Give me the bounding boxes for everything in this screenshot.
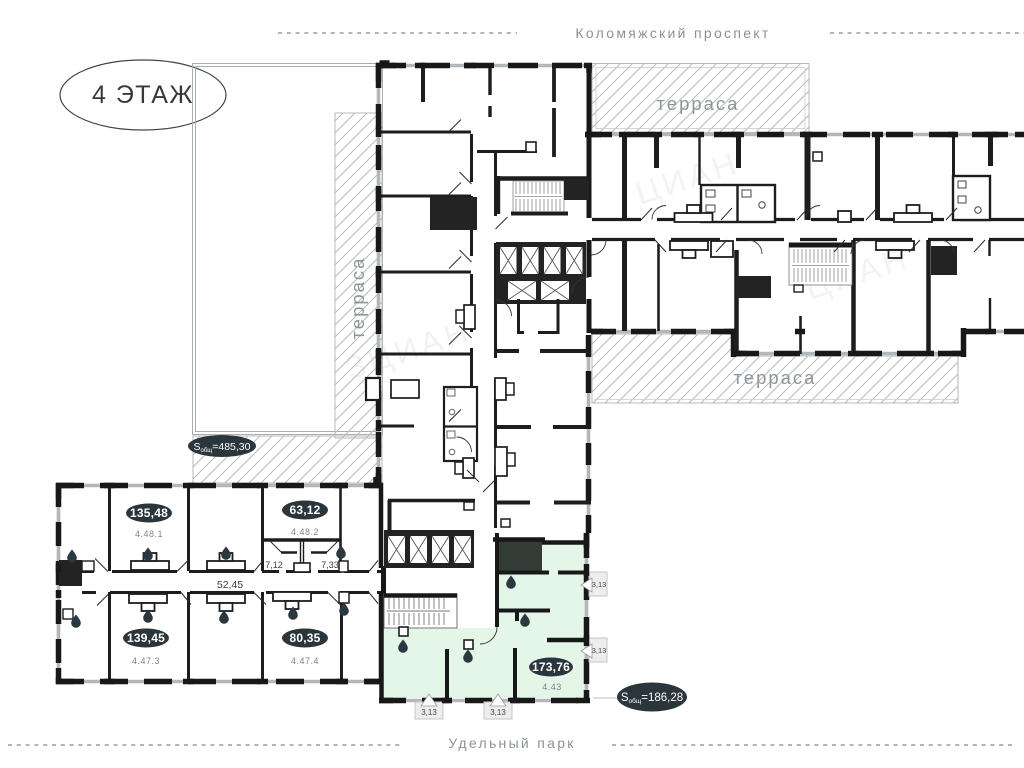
svg-text:52,45: 52,45 xyxy=(217,579,243,591)
svg-text:80,35: 80,35 xyxy=(289,631,320,645)
svg-text:7,12: 7,12 xyxy=(265,560,283,570)
svg-text:терраса: терраса xyxy=(347,257,368,340)
svg-text:4.47.4: 4.47.4 xyxy=(291,656,319,666)
svg-text:63,12: 63,12 xyxy=(289,503,320,517)
svg-text:3,13: 3,13 xyxy=(592,580,607,589)
svg-text:4 ЭТАЖ: 4 ЭТАЖ xyxy=(92,81,194,109)
svg-text:4.43: 4.43 xyxy=(542,682,562,692)
svg-text:139,45: 139,45 xyxy=(127,631,165,645)
svg-text:Удельный парк: Удельный парк xyxy=(448,735,575,751)
svg-text:4.48.2: 4.48.2 xyxy=(291,527,319,537)
svg-text:3,13: 3,13 xyxy=(490,708,506,717)
svg-text:терраса: терраса xyxy=(734,367,817,388)
svg-text:терраса: терраса xyxy=(657,93,740,114)
svg-text:4.48.1: 4.48.1 xyxy=(135,529,163,539)
svg-text:3,13: 3,13 xyxy=(421,708,437,717)
svg-text:7,33: 7,33 xyxy=(321,560,339,570)
svg-text:3,13: 3,13 xyxy=(592,646,607,655)
svg-text:Коломяжский проспект: Коломяжский проспект xyxy=(575,25,770,41)
svg-text:173,76: 173,76 xyxy=(532,660,570,674)
svg-text:135,48: 135,48 xyxy=(130,506,168,520)
svg-text:4.47.3: 4.47.3 xyxy=(132,656,160,666)
